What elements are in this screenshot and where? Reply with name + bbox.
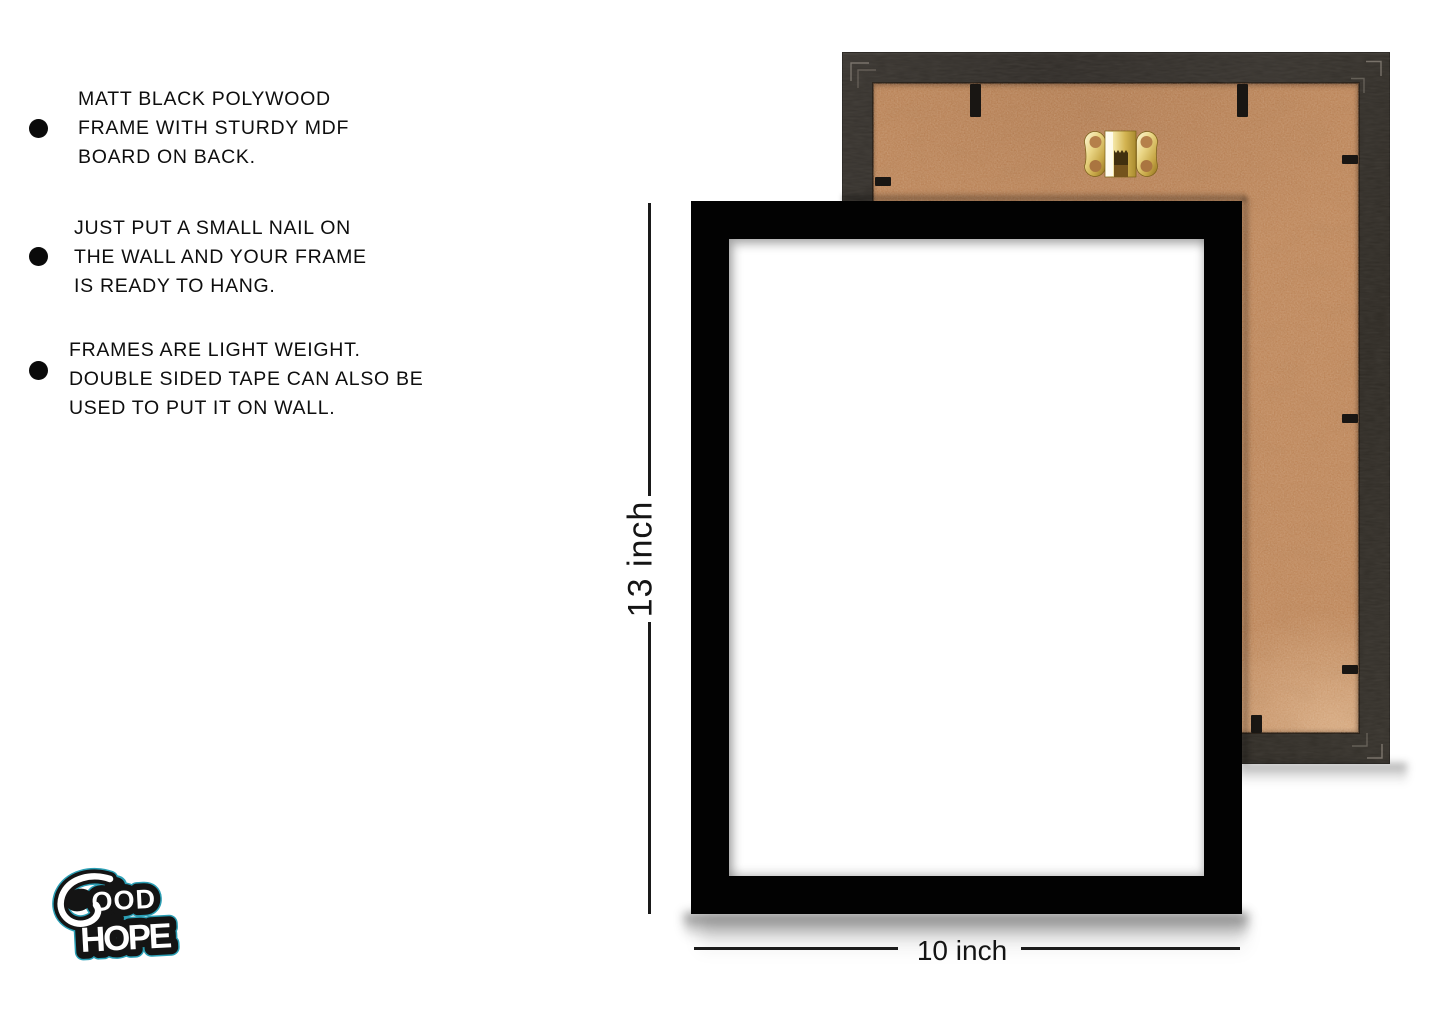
svg-text:HOPE: HOPE	[79, 916, 171, 960]
svg-text:OOD: OOD	[91, 884, 157, 917]
